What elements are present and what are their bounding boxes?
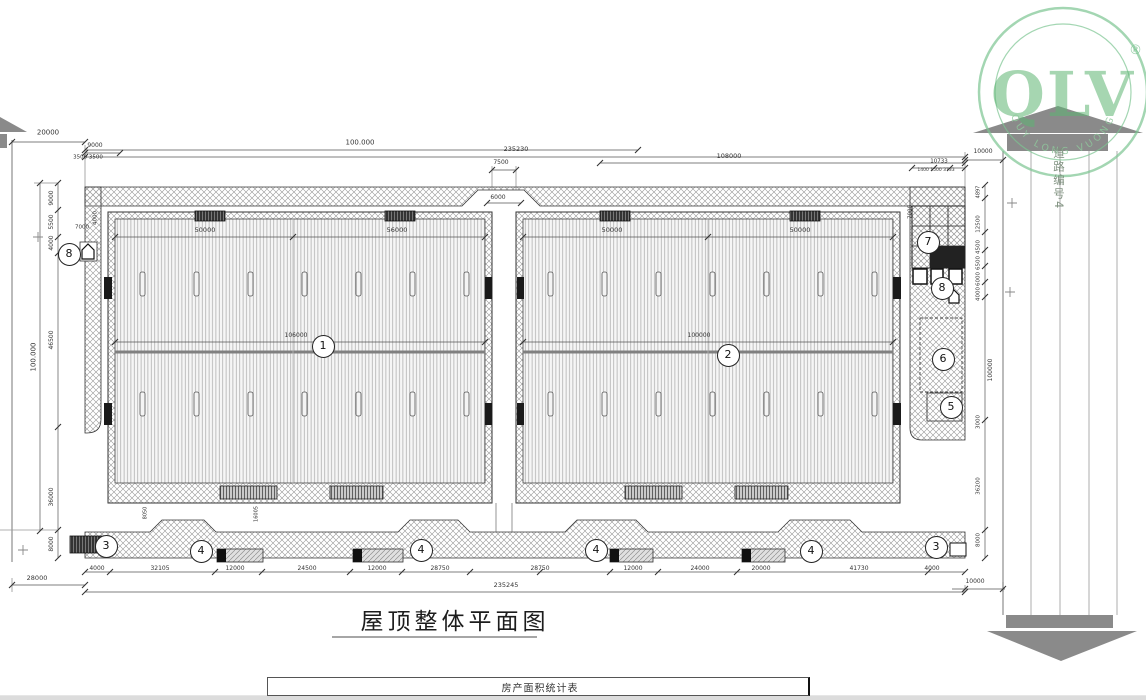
drawing-title: 屋顶整体平面图 xyxy=(361,602,550,636)
left-road xyxy=(0,117,57,562)
equipment-box xyxy=(70,536,102,553)
area-table-title: 房产面积统计表 xyxy=(502,680,579,695)
road-number-label: 道路编号4 xyxy=(1051,147,1067,237)
vent-icon xyxy=(790,211,820,221)
road-arrow-left-icon xyxy=(0,117,27,132)
canopy-icon xyxy=(220,486,277,499)
canopy-icon xyxy=(735,486,788,499)
plan-drawing: QLV ® QUY LONG VUONG xyxy=(0,0,1146,700)
door-icon xyxy=(913,269,927,284)
roof-plan-sheet: QLV ® QUY LONG VUONG 道路编号4 屋顶整体平面图 房产面积统… xyxy=(0,0,1146,700)
door-icon xyxy=(931,269,943,284)
canopy-icon xyxy=(330,486,383,499)
building-2 xyxy=(516,212,900,503)
vent-icon xyxy=(600,211,630,221)
corridor-edges xyxy=(496,503,512,532)
canopy-icon xyxy=(625,486,682,499)
table-second-row xyxy=(0,696,1146,700)
door-icon xyxy=(949,269,962,284)
equipment-box xyxy=(950,543,966,556)
logo-registered-mark: ® xyxy=(1129,43,1142,58)
road-arrow-down-icon xyxy=(987,631,1137,661)
vent-icon xyxy=(195,211,225,221)
vent-icon xyxy=(385,211,415,221)
building-1 xyxy=(108,212,492,503)
top-band xyxy=(85,187,965,206)
left-band xyxy=(85,187,101,433)
